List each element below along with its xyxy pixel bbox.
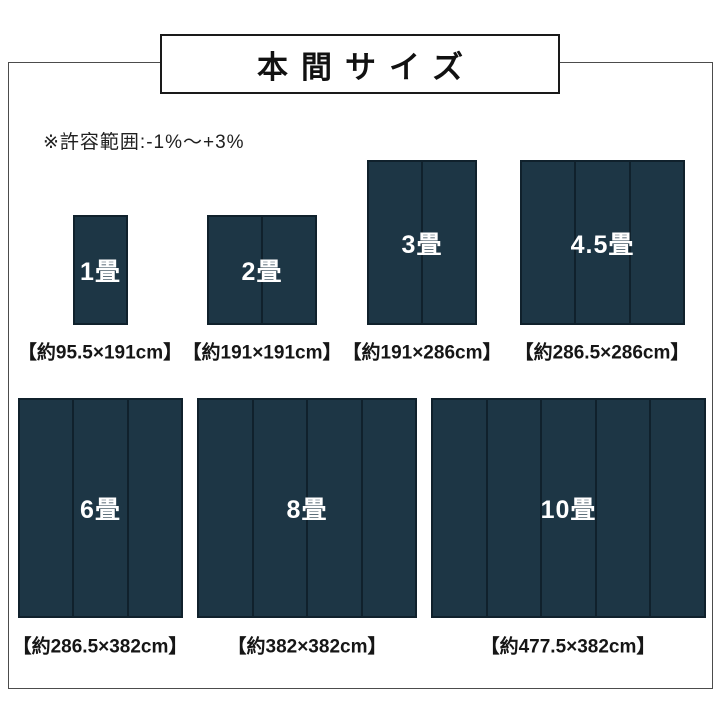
mat-dimension-label-1jo: 【約95.5×191cm】 <box>18 338 182 365</box>
mat-size-name-10jo: 10畳 <box>541 490 597 526</box>
mat-dimension-label-10jo: 【約477.5×382cm】 <box>481 632 656 659</box>
mat-6jo: 6畳 <box>18 398 183 618</box>
mat-dimension-label-6jo: 【約286.5×382cm】 <box>13 632 188 659</box>
tatami-panel <box>595 400 650 616</box>
mat-size-name-4-5jo: 4.5畳 <box>571 225 635 261</box>
mat-10jo: 10畳 <box>431 398 706 618</box>
mat-dimension-label-8jo: 【約382×382cm】 <box>228 632 387 659</box>
mat-3jo: 3畳 <box>367 160 477 325</box>
mat-1jo: 1畳 <box>73 215 128 325</box>
mat-dimension-label-2jo: 【約191×191cm】 <box>183 338 342 365</box>
tatami-panel <box>486 400 541 616</box>
tatami-panel <box>199 400 252 616</box>
page-title: 本間サイズ <box>244 42 476 87</box>
tatami-panel <box>361 400 416 616</box>
tatami-panel <box>522 162 574 323</box>
mat-dimension-label-4-5jo: 【約286.5×286cm】 <box>515 338 690 365</box>
tatami-panel <box>649 400 704 616</box>
mat-8jo: 8畳 <box>197 398 417 618</box>
mat-size-name-3jo: 3畳 <box>402 225 443 261</box>
mat-size-name-8jo: 8畳 <box>287 490 328 526</box>
mat-4-5jo: 4.5畳 <box>520 160 685 325</box>
tolerance-note: ※許容範囲:-1%〜+3% <box>43 127 245 154</box>
tatami-panel <box>20 400 72 616</box>
mat-size-name-2jo: 2畳 <box>242 252 283 288</box>
mat-size-name-1jo: 1畳 <box>80 252 121 288</box>
tatami-panel <box>433 400 486 616</box>
mat-2jo: 2畳 <box>207 215 317 325</box>
title-box: 本間サイズ <box>160 34 560 94</box>
tatami-panel <box>629 162 683 323</box>
mat-size-name-6jo: 6畳 <box>80 490 121 526</box>
tatami-panel <box>127 400 181 616</box>
mat-dimension-label-3jo: 【約191×286cm】 <box>343 338 502 365</box>
